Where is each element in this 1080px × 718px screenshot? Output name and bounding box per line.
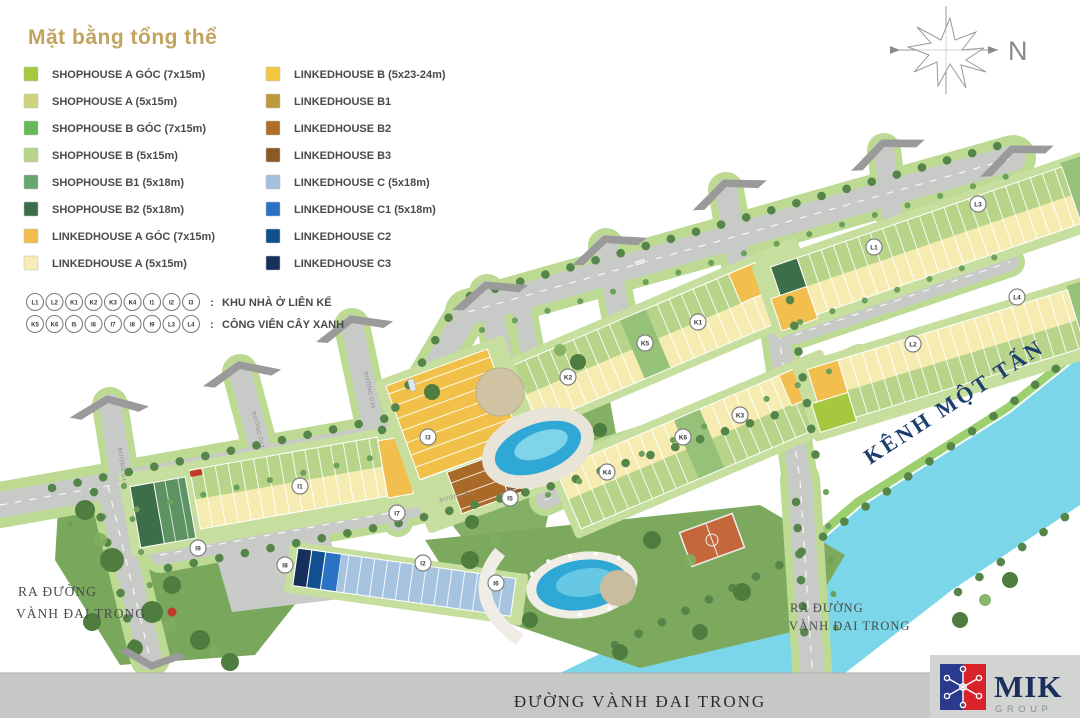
svg-text:K2: K2	[90, 301, 98, 307]
svg-text:L4: L4	[187, 323, 195, 329]
master-plan-page: ĐƯỜNG VÀNH ĐAI TRONG MIK GROUP KÊNH MỘT …	[0, 0, 1080, 718]
svg-text::: :	[210, 297, 214, 309]
exit-left-line1: RA ĐƯỜNG	[18, 584, 97, 599]
marker-i5: I5	[502, 490, 518, 506]
svg-text:K6: K6	[679, 435, 688, 442]
legend-item: LINKEDHOUSE B2	[266, 121, 391, 135]
svg-text:I5: I5	[507, 496, 513, 503]
svg-text:K5: K5	[31, 323, 39, 329]
compass-arrow-west	[890, 46, 900, 54]
legend-item: LINKEDHOUSE C (5x18m)	[266, 175, 430, 189]
marker-l1: L1	[866, 239, 882, 255]
bottom-road-bar: ĐƯỜNG VÀNH ĐAI TRONG	[0, 673, 1080, 718]
compass-rose-icon	[908, 18, 986, 88]
svg-text:I7: I7	[110, 323, 116, 329]
plaza-circle	[476, 368, 524, 416]
svg-text:I2: I2	[420, 561, 426, 568]
legend-item: LINKEDHOUSE B3	[266, 148, 391, 162]
svg-text:L1: L1	[31, 301, 39, 307]
svg-text:L2: L2	[51, 301, 59, 307]
svg-text:LINKEDHOUSE A GÓC (7x15m): LINKEDHOUSE A GÓC (7x15m)	[52, 230, 215, 243]
legend-swatch	[266, 229, 280, 243]
marker-k6: K6	[675, 429, 691, 445]
page-title: Mặt bằng tổng thể	[28, 25, 217, 49]
legend-swatch	[266, 94, 280, 108]
marker-i6: I6	[488, 575, 504, 591]
svg-text:K4: K4	[129, 301, 137, 307]
svg-text:L4: L4	[1013, 295, 1021, 302]
marker-i7: I7	[389, 505, 405, 521]
svg-text:L2: L2	[909, 342, 917, 349]
marker-k2: K2	[560, 369, 576, 385]
marker-l3: L3	[970, 196, 986, 212]
legend-item: SHOPHOUSE A GÓC (7x15m)	[24, 67, 206, 81]
legend-swatch	[24, 256, 38, 270]
exit-right-line2: VÀNH ĐAI TRONG	[789, 619, 910, 633]
marker-l4: L4	[1009, 289, 1025, 305]
legend-swatch	[24, 121, 38, 135]
legend-item: LINKEDHOUSE C2	[266, 229, 391, 243]
svg-text:L1: L1	[870, 245, 878, 252]
svg-text:SHOPHOUSE A (5x15m): SHOPHOUSE A (5x15m)	[52, 96, 177, 108]
svg-text:I1: I1	[297, 484, 303, 491]
legend-swatch	[266, 67, 280, 81]
plaza-small	[600, 570, 636, 606]
legend-swatch	[24, 229, 38, 243]
svg-text:I3: I3	[188, 301, 194, 307]
legend-item: LINKEDHOUSE C3	[266, 256, 391, 270]
svg-text:I3: I3	[425, 435, 431, 442]
marker-i8: I8	[277, 557, 293, 573]
legend-swatch	[24, 175, 38, 189]
bottom-road-label: ĐƯỜNG VÀNH ĐAI TRONG	[514, 692, 766, 711]
site-plan-map: ĐƯỜNG VÀNH ĐAI TRONG MIK GROUP KÊNH MỘT …	[0, 0, 1080, 718]
legend-swatch	[266, 175, 280, 189]
svg-text:LINKEDHOUSE A (5x15m): LINKEDHOUSE A (5x15m)	[52, 258, 187, 270]
svg-text:I2: I2	[169, 301, 175, 307]
legend-item: SHOPHOUSE B (5x15m)	[24, 148, 178, 162]
legend-item: LINKEDHOUSE B (5x23-24m)	[266, 67, 446, 81]
mik-logo: MIK GROUP	[930, 655, 1080, 718]
svg-text:I8: I8	[130, 323, 136, 329]
compass-arrow-north	[988, 46, 998, 54]
exit-left-line2: VÀNH ĐAI TRONG	[16, 606, 146, 621]
svg-text:K2: K2	[564, 375, 573, 382]
svg-text:SHOPHOUSE B (5x15m): SHOPHOUSE B (5x15m)	[52, 150, 178, 162]
svg-text:I5: I5	[71, 323, 77, 329]
svg-text:I6: I6	[91, 323, 97, 329]
entry-stub-7	[884, 150, 892, 214]
compass-n-label: N	[1008, 36, 1028, 66]
marker-k1: K1	[690, 314, 706, 330]
marker-i9: I9	[190, 540, 206, 556]
legend-swatch	[266, 202, 280, 216]
legend-item: SHOPHOUSE B1 (5x18m)	[24, 175, 184, 189]
legend-swatch	[266, 148, 280, 162]
svg-text:I6: I6	[493, 581, 499, 588]
svg-text:LINKEDHOUSE B2: LINKEDHOUSE B2	[294, 123, 391, 135]
legend-swatch	[24, 94, 38, 108]
svg-text:LINKEDHOUSE B3: LINKEDHOUSE B3	[294, 150, 391, 162]
svg-text:K1: K1	[70, 301, 78, 307]
svg-text:LINKEDHOUSE C3: LINKEDHOUSE C3	[294, 258, 391, 270]
svg-text:I7: I7	[394, 511, 400, 518]
svg-text:I9: I9	[149, 323, 155, 329]
legend-item: LINKEDHOUSE B1	[266, 94, 391, 108]
svg-text:I1: I1	[149, 301, 155, 307]
logo-mark	[940, 664, 986, 710]
svg-text:K3: K3	[736, 413, 745, 420]
legend-item: LINKEDHOUSE A (5x15m)	[24, 256, 187, 270]
marker-i3: I3	[420, 429, 436, 445]
svg-text:LINKEDHOUSE B1: LINKEDHOUSE B1	[294, 96, 391, 108]
marker-k4: K4	[599, 464, 615, 480]
legend-housing-row: L1 L2 K1 K2 K3 K4 I1 I2 I3 : KHU NHÀ Ở L…	[27, 294, 332, 311]
svg-text:K4: K4	[603, 470, 612, 477]
svg-text:K6: K6	[51, 323, 59, 329]
marker-i1: I1	[292, 478, 308, 494]
svg-text:L3: L3	[974, 202, 982, 209]
legend-swatch	[24, 148, 38, 162]
svg-text:SHOPHOUSE B1 (5x18m): SHOPHOUSE B1 (5x18m)	[52, 177, 184, 189]
svg-text:LINKEDHOUSE C2: LINKEDHOUSE C2	[294, 231, 391, 243]
legend: SHOPHOUSE A GÓC (7x15m) SHOPHOUSE A (5x1…	[24, 67, 446, 333]
compass: N	[890, 6, 1028, 94]
exit-right-line1: RA ĐƯỜNG	[790, 601, 864, 615]
svg-text::: :	[210, 319, 214, 331]
svg-text:SHOPHOUSE B GÓC (7x15m): SHOPHOUSE B GÓC (7x15m)	[52, 122, 206, 135]
legend-housing-label: KHU NHÀ Ở LIÊN KẾ	[222, 296, 332, 309]
svg-text:LINKEDHOUSE B (5x23-24m): LINKEDHOUSE B (5x23-24m)	[294, 69, 446, 81]
legend-swatch	[24, 67, 38, 81]
svg-text:LINKEDHOUSE C1 (5x18m): LINKEDHOUSE C1 (5x18m)	[294, 204, 436, 216]
legend-swatch	[266, 121, 280, 135]
marker-l2: L2	[905, 336, 921, 352]
svg-text:LINKEDHOUSE C (5x18m): LINKEDHOUSE C (5x18m)	[294, 177, 430, 189]
svg-text:K5: K5	[641, 341, 650, 348]
legend-item: SHOPHOUSE A (5x15m)	[24, 94, 177, 108]
legend-item: SHOPHOUSE B2 (5x18m)	[24, 202, 184, 216]
legend-park-label: CÔNG VIÊN CÂY XANH	[222, 318, 344, 331]
legend-swatch	[266, 256, 280, 270]
playground-item	[168, 608, 177, 617]
svg-text:K3: K3	[109, 301, 117, 307]
svg-text:SHOPHOUSE A GÓC (7x15m): SHOPHOUSE A GÓC (7x15m)	[52, 68, 206, 81]
legend-item: LINKEDHOUSE A GÓC (7x15m)	[24, 229, 215, 243]
legend-park-row: K5 K6 I5 I6 I7 I8 I9 L3 L4 : CÔNG VIÊN C…	[27, 316, 345, 333]
logo-group-label: GROUP	[995, 704, 1052, 715]
logo-name: MIK	[994, 669, 1062, 704]
marker-k5: K5	[637, 335, 653, 351]
svg-text:L3: L3	[168, 323, 176, 329]
svg-text:SHOPHOUSE B2 (5x18m): SHOPHOUSE B2 (5x18m)	[52, 204, 184, 216]
marker-i2: I2	[415, 555, 431, 571]
legend-item: LINKEDHOUSE C1 (5x18m)	[266, 202, 436, 216]
legend-swatch	[24, 202, 38, 216]
marker-k3: K3	[732, 407, 748, 423]
svg-text:K1: K1	[694, 320, 703, 327]
svg-text:I9: I9	[195, 546, 201, 553]
legend-item: SHOPHOUSE B GÓC (7x15m)	[24, 121, 206, 135]
svg-text:I8: I8	[282, 563, 288, 570]
